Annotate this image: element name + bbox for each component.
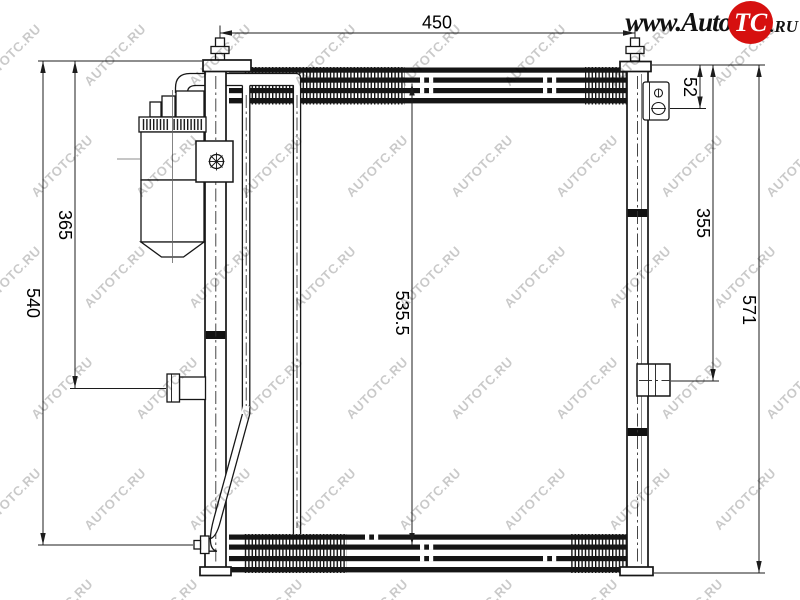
drier-bracket	[196, 141, 233, 182]
dim-label-right-top: 52	[680, 77, 700, 97]
product-image: 450 540 365 535.5 52 355 571 AUTOTC.RUAU…	[0, 0, 800, 600]
brand-logo: www.Auto TC .RU	[625, 1, 798, 44]
dim-label-right-overall: 571	[739, 295, 759, 325]
receiver-drier	[117, 90, 206, 263]
brand-url-prefix: www.Auto	[625, 7, 731, 38]
lower-right-bracket	[637, 364, 670, 396]
brand-url-suffix: .RU	[770, 17, 798, 37]
top-right-bracket	[643, 82, 669, 120]
condenser-technical-drawing: 450 540 365 535.5 52 355 571	[0, 0, 800, 600]
dim-label-top-width: 450	[422, 13, 452, 33]
dim-label-left-overall: 540	[23, 288, 43, 318]
brand-badge: TC	[728, 1, 773, 44]
lower-left-fitting	[167, 374, 206, 402]
dim-label-left-inner: 365	[55, 210, 75, 240]
dim-label-core-height: 535.5	[392, 290, 412, 335]
dim-label-right-inner: 355	[693, 208, 713, 238]
core-fins-bottom	[229, 534, 627, 573]
